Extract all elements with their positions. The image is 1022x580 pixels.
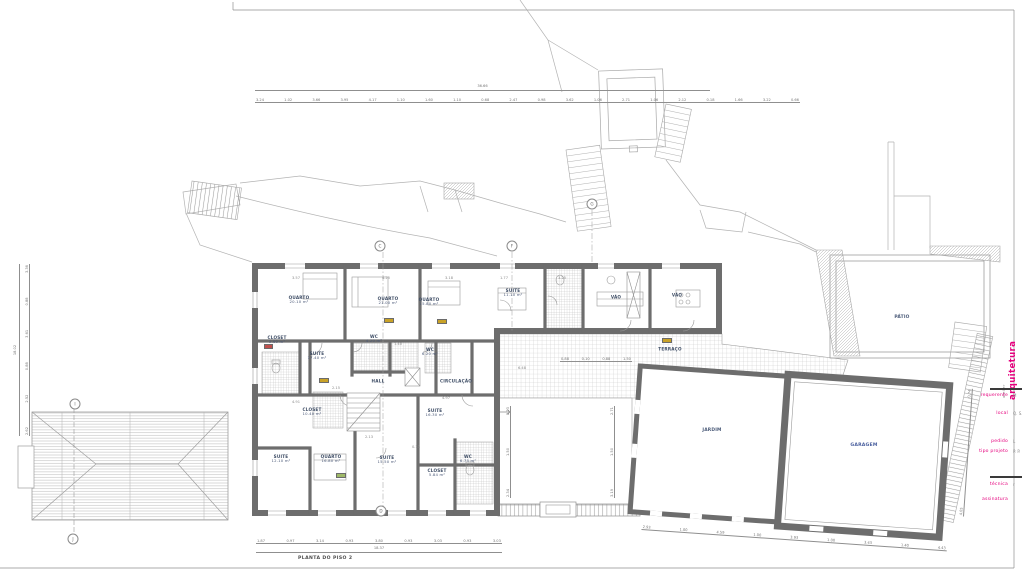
dim-value: 2.52 — [25, 394, 29, 404]
room-label-quarto1: QUARTO20.10 m² — [289, 295, 310, 305]
titleblock-value: Q. S. — [1013, 411, 1022, 416]
dim-value: 3.03 — [433, 539, 443, 543]
sheet-title: PLANTA DO PISO 2 — [298, 556, 352, 561]
plan-dim: 3.57 — [292, 276, 300, 280]
plan-dim: 1.77 — [500, 276, 508, 280]
dim-value: 0.88 — [560, 357, 570, 361]
dim-value: 3.36 — [25, 264, 29, 274]
titleblock-value: P. P. — [1013, 449, 1020, 454]
dim-value: 2.71 — [610, 406, 614, 416]
plan-dim: 4.91 — [292, 400, 300, 404]
dim-value: 2.62 — [25, 426, 29, 436]
section-marker-f: F — [507, 241, 518, 252]
courtyard — [497, 398, 640, 517]
dim-value: 1.00 — [678, 528, 688, 533]
dim-value: 3.66 — [311, 98, 321, 102]
site-steps-topleft — [188, 181, 242, 220]
site-label-patio: PÁTIO — [894, 315, 909, 321]
dim-total-bottom: 18.37 — [256, 546, 502, 553]
plan-dim: 2.13 — [365, 435, 373, 439]
section-marker-j: J — [68, 534, 79, 545]
dim-value: 1.50 — [622, 357, 632, 361]
code-tag — [662, 338, 672, 343]
dim-value: 4.17 — [368, 98, 378, 102]
dim-value: 1.66 — [734, 98, 744, 102]
dim-chain-courtyard-right: 3.191.502.71 — [607, 406, 615, 498]
dim-value: 2.12 — [677, 98, 687, 102]
dim-value: 4.43 — [937, 546, 947, 551]
dim-value: 2.71 — [621, 98, 631, 102]
dim-value: 0.68 — [480, 98, 490, 102]
titleblock-label-pedido: pedido — [966, 439, 1008, 444]
titleblock-label-assinatura: assinatura — [966, 497, 1008, 502]
room-label-suite5: SUITE16.30 m² — [426, 408, 445, 418]
plan-dim: 2.15 — [332, 386, 340, 390]
plan-dim: 3.25 — [558, 276, 566, 280]
roof-bottom-left — [18, 408, 228, 536]
dim-value: 0.93 — [403, 539, 413, 543]
annex-structure — [599, 69, 666, 153]
site-label-garagem: GARAGEM — [850, 443, 877, 449]
room-label-terraco: TERRAÇO — [658, 346, 681, 351]
code-tag — [319, 378, 329, 383]
room-label-quarto2: QUARTO21.00 m² — [378, 296, 399, 306]
dim-value: 0.10 — [581, 357, 591, 361]
dim-chain-top: 3.241.023.663.954.171.101.601.100.682.47… — [255, 95, 800, 103]
room-label-quarto3: QUARTO15.80 m² — [419, 297, 440, 307]
dim-value: 0.18 — [706, 98, 716, 102]
dim-value: 2.47 — [508, 98, 518, 102]
section-marker-i: I — [70, 399, 81, 410]
titleblock-bar — [990, 388, 1022, 390]
plan-dim: 6.48 — [518, 366, 526, 370]
dim-value: 0.88 — [601, 357, 611, 361]
room-label-vao2: VÃO — [672, 292, 682, 297]
room-label-suite2: SUITE11.10 m² — [504, 288, 523, 298]
dim-value: 3.43 — [863, 540, 873, 545]
room-label-wc2: WC6.20 m² — [422, 347, 438, 357]
patio-roof-hatch-top — [930, 246, 1000, 262]
room-label-suite3: SUITE12.10 m² — [272, 454, 291, 464]
room-label-circulacao: CIRCULAÇÃO — [440, 378, 472, 383]
dim-value: 3.95 — [339, 98, 349, 102]
annex-stairs — [655, 104, 692, 162]
titleblock-value: M — [1013, 393, 1016, 398]
code-tag — [336, 473, 346, 478]
dim-value: 3.62 — [565, 98, 575, 102]
hall-stairs — [347, 393, 380, 431]
room-label-wc3: WC6.75 m² — [460, 454, 476, 464]
section-marker-d: D — [376, 506, 387, 517]
dim-value: 0.98 — [537, 98, 547, 102]
patio-roof-hatch-left — [816, 250, 860, 356]
dim-value: 0.97 — [285, 539, 295, 543]
dim-value: 0.88 — [25, 296, 29, 306]
dim-value: 1.10 — [452, 98, 462, 102]
titleblock-label-tecnica: técnica — [966, 482, 1008, 487]
plan-dim: 0.13 — [412, 445, 420, 449]
plan-dim: 1.40 — [394, 342, 402, 346]
code-tag — [384, 318, 394, 323]
dim-value: 1.50 — [610, 447, 614, 457]
dim-value: 3.61 — [25, 329, 29, 339]
garden-garage-compound — [630, 364, 950, 537]
titleblock-value: L — [1013, 439, 1015, 444]
dim-value: 1.50 — [506, 447, 510, 457]
dim-chain-left: 2.622.520.883.610.883.36 — [22, 264, 30, 436]
annex-left-stairs — [566, 145, 611, 231]
room-label-wc1: WC4.20 m² — [366, 334, 382, 344]
dim-value: 1.06 — [649, 98, 659, 102]
dim-value: 0.93 — [462, 539, 472, 543]
plan-dim: 3.18 — [445, 276, 453, 280]
dim-value: 3.14 — [315, 539, 325, 543]
plan-dim: 4.25 — [382, 276, 390, 280]
dim-value: 1.10 — [396, 98, 406, 102]
room-label-vao1: VÃO — [611, 294, 621, 299]
dim-value: 3.22 — [762, 98, 772, 102]
site-label-jardim: JARDIM — [702, 428, 721, 434]
dim-value: 0.66 — [790, 98, 800, 102]
dim-value: 3.03 — [492, 539, 502, 543]
code-tag — [437, 319, 447, 324]
dim-value: 2.34 — [506, 488, 510, 498]
dim-value: 3.80 — [374, 539, 384, 543]
titleblock-label-local: local — [966, 411, 1008, 416]
dim-value: 4.59 — [715, 530, 725, 535]
room-label-suite1: SUITE17.40 m² — [308, 351, 327, 361]
site-context-lines — [183, 0, 930, 262]
drawing-sheet: QUARTO20.10 m² CLOSET5.60 m² SUITE17.40 … — [0, 0, 1022, 580]
room-label-quarto4: QUARTO16.80 m² — [321, 454, 342, 464]
dim-value: 1.00 — [826, 538, 836, 543]
titleblock-studio: arquitetura — [1008, 341, 1018, 400]
dim-value: 4.05 — [959, 506, 964, 516]
room-label-hall: HALL — [372, 378, 385, 383]
room-label-closet3: CLOSET5.84 m² — [427, 468, 446, 478]
section-marker-g: G — [587, 199, 598, 210]
room-label-suite4: SUITE15.50 m² — [378, 455, 397, 465]
room-label-closet2: CLOSET10.40 m² — [302, 407, 321, 417]
dim-value: 0.93 — [344, 539, 354, 543]
dim-chain-courtyard-left: 2.341.502.23 — [503, 406, 511, 498]
dim-chain-bottom: 1.870.973.140.933.800.933.030.933.03 — [256, 536, 502, 544]
dim-value: 0.88 — [25, 361, 29, 371]
section-marker-c: C — [375, 241, 386, 252]
dim-value: 2.93 — [642, 525, 652, 530]
dim-value: 1.02 — [283, 98, 293, 102]
plan-dim: 4.97 — [442, 396, 450, 400]
dim-value: 3.93 — [789, 535, 799, 540]
dim-total-top: 36.66 — [255, 84, 710, 91]
dim-value: 1.06 — [593, 98, 603, 102]
dim-chain-terrace: 0.880.100.881.50 — [560, 354, 632, 362]
titleblock-value: r — [1013, 482, 1015, 487]
dim-value: 1.60 — [424, 98, 434, 102]
dim-value: 1.87 — [256, 539, 266, 543]
dim-value: 3.24 — [255, 98, 265, 102]
dim-value: 1.40 — [900, 543, 910, 548]
titleblock-label-requerente: requerente — [966, 393, 1008, 398]
dim-value: 2.23 — [506, 406, 510, 416]
dim-value: 3.19 — [610, 488, 614, 498]
titleblock-bar — [990, 476, 1022, 478]
titleblock-label-tipo-projeto: tipo projeto — [966, 449, 1008, 454]
heater-mark — [264, 344, 273, 349]
dim-value: 1.00 — [752, 533, 762, 538]
dim-total-left: 18.02 — [13, 264, 20, 436]
